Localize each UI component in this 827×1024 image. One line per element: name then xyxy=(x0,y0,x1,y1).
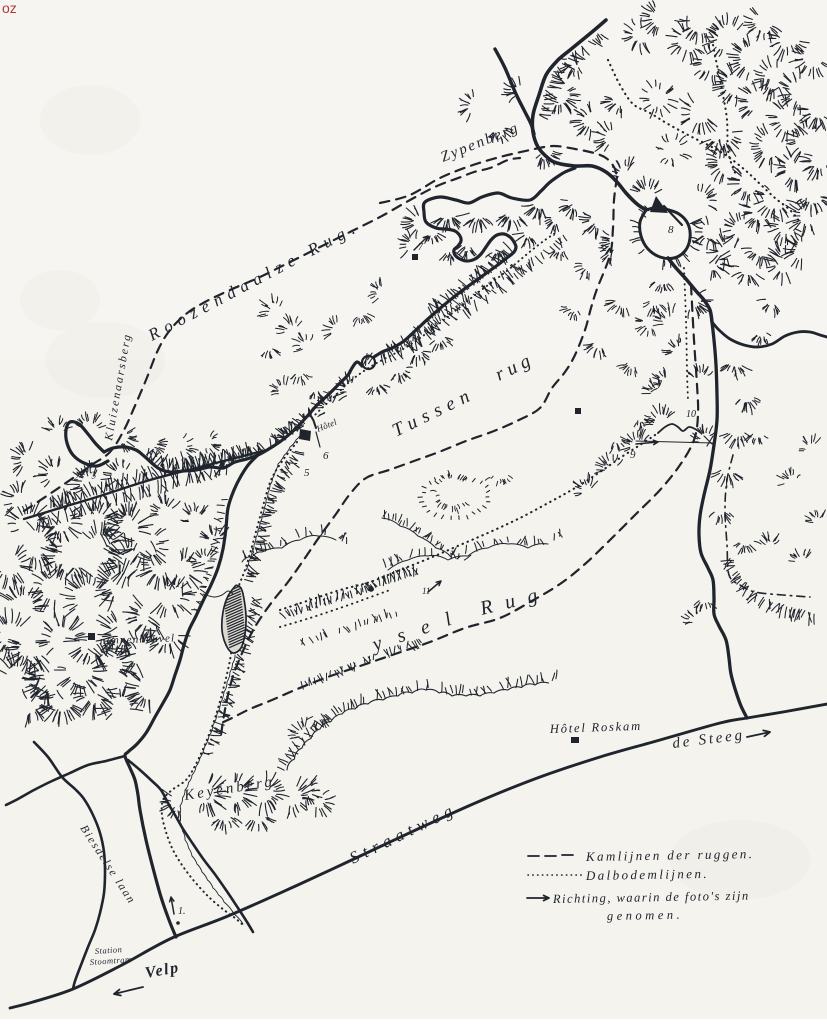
svg-text:8: 8 xyxy=(668,224,674,236)
svg-text:2: 2 xyxy=(74,472,79,483)
svg-text:6: 6 xyxy=(323,450,329,462)
svg-text:Dalbodemlijnen.: Dalbodemlijnen. xyxy=(585,866,709,883)
svg-text:4: 4 xyxy=(216,468,221,479)
svg-text:10: 10 xyxy=(686,409,696,420)
svg-text:Kamlijnen der ruggen.: Kamlijnen der ruggen. xyxy=(585,846,755,864)
svg-text:genomen.: genomen. xyxy=(607,908,683,923)
svg-text:1.: 1. xyxy=(178,906,186,917)
svg-text:oz: oz xyxy=(2,0,17,16)
svg-text:11: 11 xyxy=(422,586,430,596)
svg-text:9: 9 xyxy=(630,449,636,461)
svg-text:5: 5 xyxy=(304,467,310,479)
